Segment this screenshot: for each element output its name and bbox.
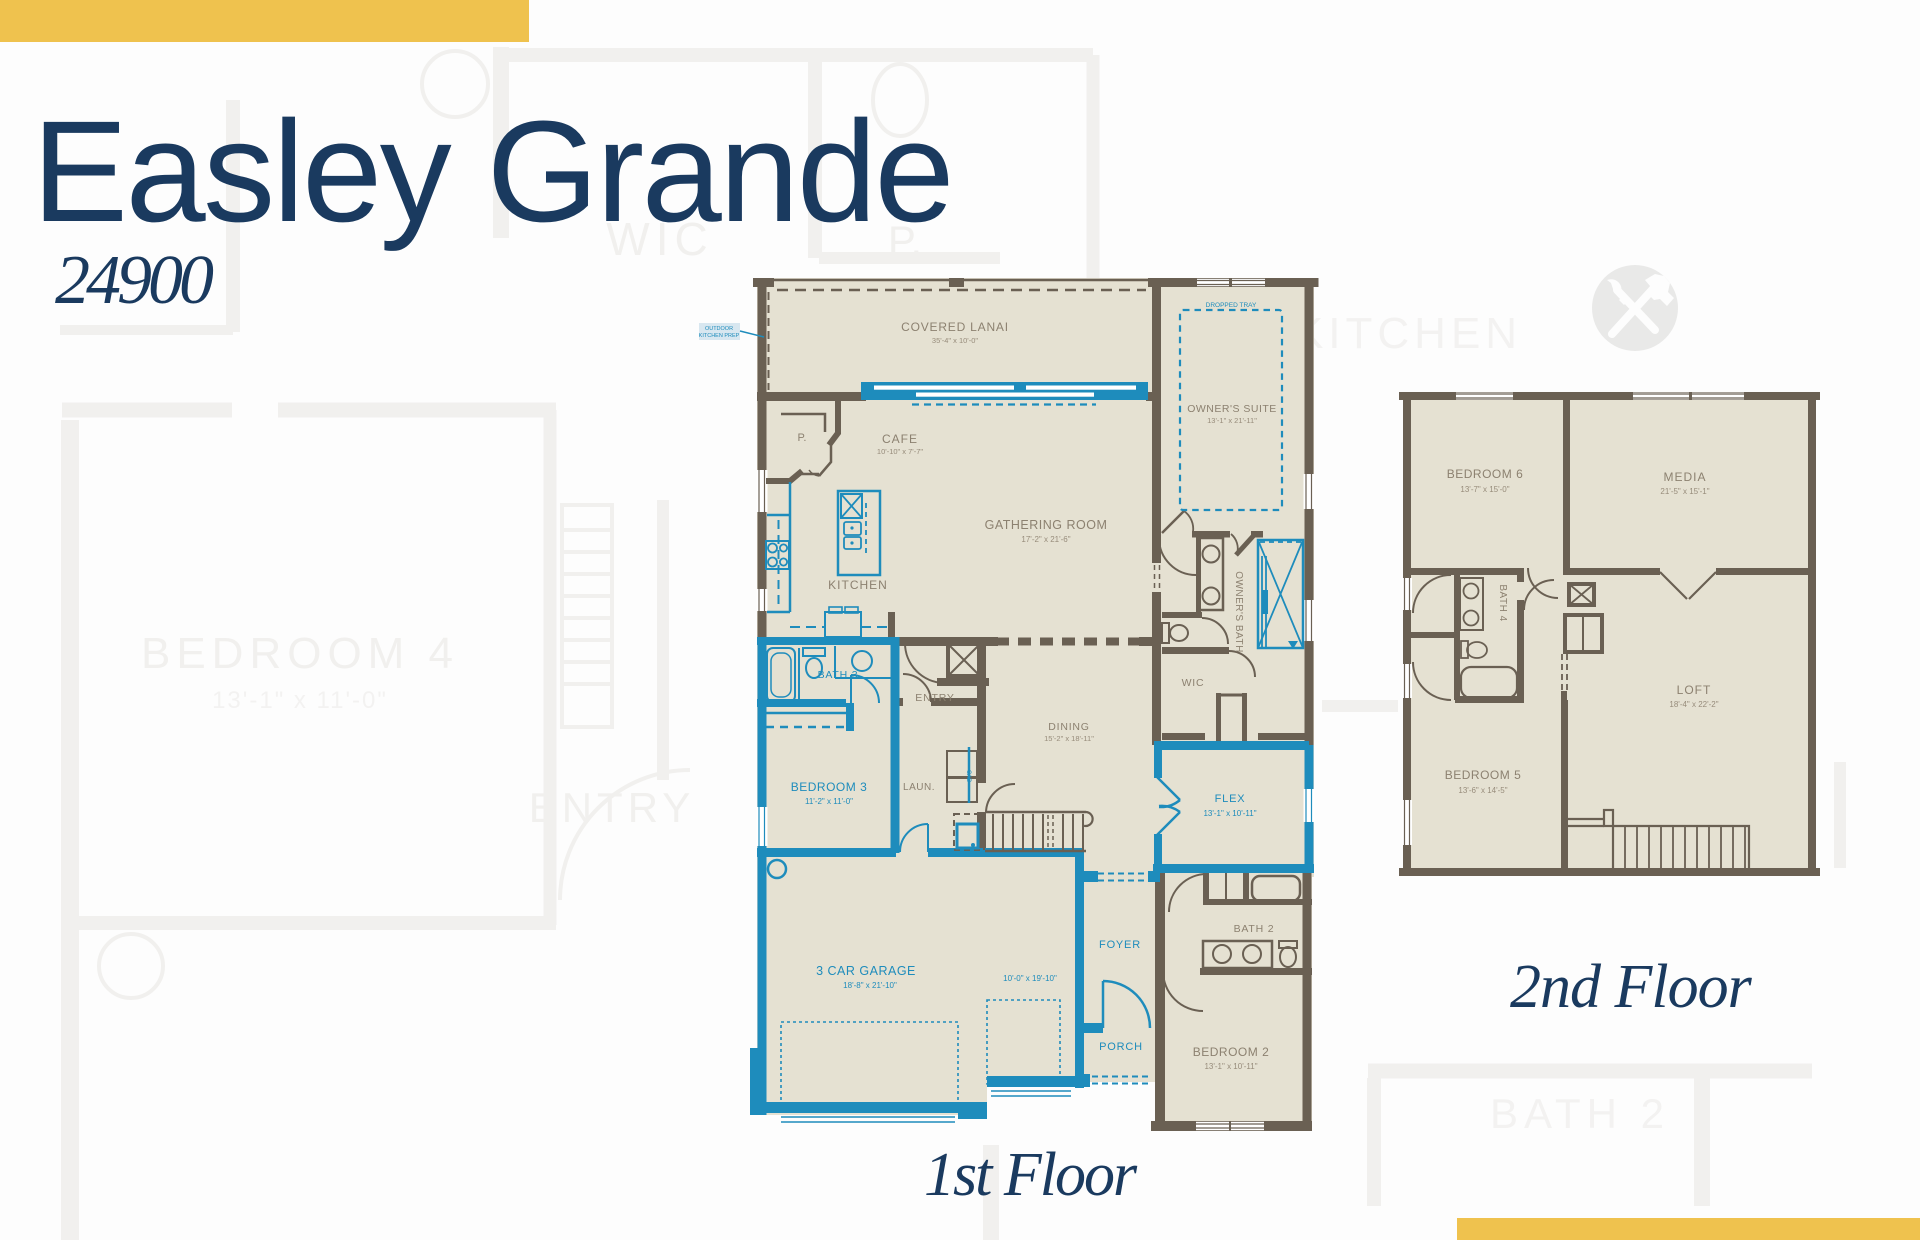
svg-text:FLEX: FLEX: [1215, 793, 1246, 805]
svg-text:OWNER'S BATH: OWNER'S BATH: [1233, 571, 1244, 653]
svg-text:BATH 2: BATH 2: [1490, 1090, 1670, 1137]
svg-text:OWNER'S SUITE: OWNER'S SUITE: [1187, 403, 1277, 415]
svg-text:WIC: WIC: [1182, 677, 1205, 689]
svg-text:17'-2" x 21'-6": 17'-2" x 21'-6": [1021, 535, 1070, 544]
svg-text:BEDROOM 6: BEDROOM 6: [1447, 467, 1524, 481]
svg-text:18'-4" x 22'-2": 18'-4" x 22'-2": [1669, 700, 1718, 709]
svg-text:13'-1" x 10'-11": 13'-1" x 10'-11": [1203, 809, 1256, 818]
svg-text:10'-0" x 19'-10": 10'-0" x 19'-10": [1003, 974, 1057, 983]
svg-text:LAUN.: LAUN.: [903, 782, 935, 793]
svg-text:OUTDOOR: OUTDOOR: [705, 326, 733, 332]
svg-text:BEDROOM 3: BEDROOM 3: [791, 780, 868, 794]
svg-text:13'-1" x 10'-11": 13'-1" x 10'-11": [1204, 1062, 1257, 1071]
svg-text:DROPPED TRAY: DROPPED TRAY: [1206, 302, 1257, 309]
svg-text:18'-8" x 21'-10": 18'-8" x 21'-10": [843, 981, 897, 990]
svg-text:13'-6" x 14'-5": 13'-6" x 14'-5": [1458, 786, 1507, 795]
svg-text:LOFT: LOFT: [1677, 683, 1712, 697]
svg-text:ENTRY: ENTRY: [529, 784, 696, 831]
svg-text:DINING: DINING: [1048, 721, 1090, 733]
svg-text:ENTRY: ENTRY: [915, 692, 954, 704]
svg-text:10'-10" x 7'-7": 10'-10" x 7'-7": [877, 447, 923, 456]
svg-text:P.: P.: [798, 432, 807, 444]
svg-text:35'-4" x 10'-0": 35'-4" x 10'-0": [932, 336, 978, 345]
svg-text:MEDIA: MEDIA: [1663, 470, 1706, 484]
svg-text:BEDROOM 4: BEDROOM 4: [141, 629, 459, 678]
svg-text:13'-7" x 15'-0": 13'-7" x 15'-0": [1460, 485, 1509, 494]
svg-text:15'-2" x 18'-11": 15'-2" x 18'-11": [1044, 734, 1094, 743]
svg-text:KITCHEN PREP: KITCHEN PREP: [699, 333, 740, 339]
svg-text:13'-1" x 11'-0": 13'-1" x 11'-0": [212, 687, 388, 714]
svg-text:KITCHEN: KITCHEN: [1294, 309, 1522, 358]
svg-text:BATH 4: BATH 4: [1497, 584, 1508, 621]
svg-text:21'-5" x 15'-1": 21'-5" x 15'-1": [1660, 487, 1709, 496]
svg-text:CAFE: CAFE: [882, 432, 918, 446]
svg-text:BATH 2: BATH 2: [1234, 923, 1275, 935]
svg-text:PORCH: PORCH: [1099, 1041, 1143, 1053]
svg-text:KITCHEN: KITCHEN: [828, 578, 888, 592]
svg-text:GATHERING ROOM: GATHERING ROOM: [985, 518, 1108, 532]
svg-text:BEDROOM 5: BEDROOM 5: [1445, 768, 1522, 782]
svg-text:FOYER: FOYER: [1099, 939, 1141, 951]
svg-text:BEDROOM 2: BEDROOM 2: [1193, 1045, 1270, 1059]
svg-text:11'-2" x 11'-0": 11'-2" x 11'-0": [805, 797, 853, 806]
svg-text:13'-1" x 21'-11": 13'-1" x 21'-11": [1207, 416, 1257, 425]
svg-text:CAB: CAB: [965, 770, 971, 782]
svg-text:BATH 3: BATH 3: [818, 669, 859, 681]
svg-text:3 CAR GARAGE: 3 CAR GARAGE: [816, 964, 916, 978]
svg-text:COVERED LANAI: COVERED LANAI: [901, 320, 1009, 334]
